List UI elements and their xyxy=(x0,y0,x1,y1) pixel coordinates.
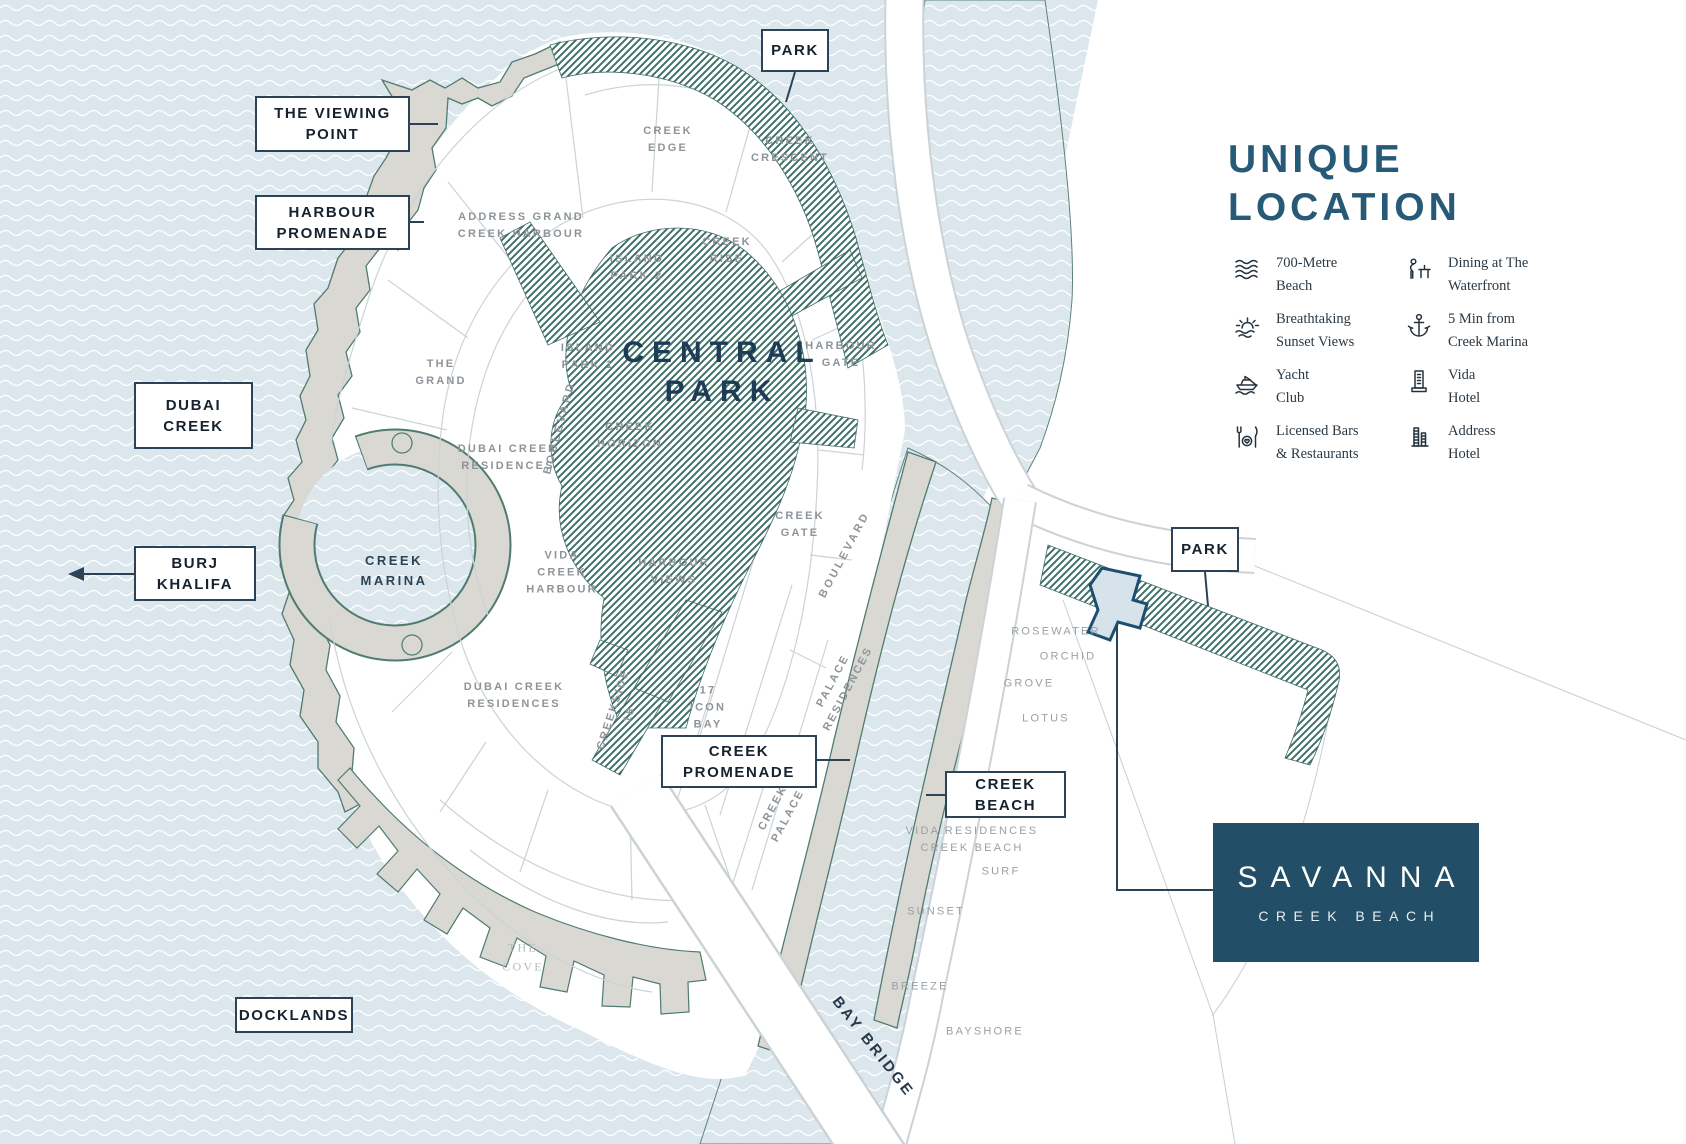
feature-beach: 700-Metre Beach xyxy=(1232,252,1402,298)
feature-label: Breathtaking Sunset Views xyxy=(1276,308,1354,354)
feature-label: 5 Min from Creek Marina xyxy=(1448,308,1528,354)
address-hotel-icon xyxy=(1404,422,1434,452)
feature-label: Vida Hotel xyxy=(1448,364,1480,410)
savanna-name: SAVANNA xyxy=(1225,861,1468,895)
feature-sunset-views: Breathtaking Sunset Views xyxy=(1232,308,1402,354)
dining-icon xyxy=(1404,254,1434,284)
savanna-subtitle: CREEK BEACH xyxy=(1251,908,1441,924)
area-grove: GROVE xyxy=(1004,675,1055,692)
feature-label: Licensed Bars & Restaurants xyxy=(1276,420,1359,466)
page-title: UNIQUE LOCATION xyxy=(1228,136,1461,232)
callout-park-top: PARK xyxy=(761,29,829,72)
area-creek-marina: CREEK MARINA xyxy=(361,551,428,591)
area-17-icon-bay: 17 ICON BAY xyxy=(690,682,726,733)
yacht-icon xyxy=(1232,366,1262,396)
feature-vida-hotel: Vida Hotel xyxy=(1404,364,1574,410)
area-harbour-gate: HARBOUR GATE xyxy=(805,338,877,372)
area-the-cove: THE COVE xyxy=(502,938,543,975)
callout-park-right: PARK xyxy=(1171,527,1239,572)
marina-knob-south xyxy=(402,635,422,655)
bars-icon xyxy=(1232,422,1262,452)
area-creek-crescent: CREEK CRESCENT xyxy=(751,133,829,167)
area-harbour-views: HARBOUR VIEWS xyxy=(638,555,710,589)
area-creek-horizon: CREEK HORIZON xyxy=(597,419,663,453)
callout-harbour-promenade: HARBOUR PROMENADE xyxy=(255,195,410,250)
area-breeze: BREEZE xyxy=(891,978,948,995)
area-bayshore: BAYSHORE xyxy=(946,1023,1024,1040)
waves-icon xyxy=(1232,254,1262,284)
area-island-park-1: ISLAND PARK 1 xyxy=(561,340,615,374)
area-central-park: CENTRAL PARK xyxy=(622,333,821,411)
area-surf: SURF xyxy=(982,863,1021,880)
area-island-park-2: ISLAND PARK 2 xyxy=(610,251,664,285)
feature-label: Dining at The Waterfront xyxy=(1448,252,1528,298)
callout-viewing-point: THE VIEWING POINT xyxy=(255,96,410,152)
area-address-grand: ADDRESS GRAND CREEK HARBOUR xyxy=(458,209,584,243)
sunset-icon xyxy=(1232,310,1262,340)
area-rosewater: ROSEWATER xyxy=(1011,623,1100,640)
area-sunset: SUNSET xyxy=(907,903,965,920)
area-vida-residences-creek-beach: VIDA RESIDENCES CREEK BEACH xyxy=(906,823,1039,857)
area-lotus: LOTUS xyxy=(1022,710,1070,727)
area-creek-gate: CREEK GATE xyxy=(775,508,825,542)
feature-label: Yacht Club xyxy=(1276,364,1309,410)
feature-address-hotel: Address Hotel xyxy=(1404,420,1574,466)
vida-hotel-icon xyxy=(1404,366,1434,396)
location-map-page: CENTRAL PARK CREEK EDGE CREEK CRESCENT C… xyxy=(0,0,1686,1144)
savanna-brand-plate: SAVANNA CREEK BEACH xyxy=(1213,823,1479,962)
callout-burj-khalifa: BURJ KHALIFA xyxy=(134,546,256,601)
callout-dubai-creek: DUBAI CREEK xyxy=(134,382,253,449)
feature-waterfront-dining: Dining at The Waterfront xyxy=(1404,252,1574,298)
marina-knob-north xyxy=(392,433,412,453)
feature-licensed-bars: Licensed Bars & Restaurants xyxy=(1232,420,1402,466)
area-creek-edge: CREEK EDGE xyxy=(643,123,693,157)
feature-creek-marina-5min: 5 Min from Creek Marina xyxy=(1404,308,1574,354)
area-orchid: ORCHID xyxy=(1040,648,1097,665)
feature-label: Address Hotel xyxy=(1448,420,1496,466)
area-dubai-creek-residences-lower: DUBAI CREEK RESIDENCES xyxy=(464,679,565,713)
anchor-icon xyxy=(1404,310,1434,340)
area-vida-creek-harbour: VIDA CREEK HARBOUR xyxy=(526,547,598,598)
callout-docklands: DOCKLANDS xyxy=(235,997,353,1033)
feature-yacht-club: Yacht Club xyxy=(1232,364,1402,410)
area-the-grand: THE GRAND xyxy=(415,356,466,390)
area-creek-rise: CREEK RISE xyxy=(702,234,752,268)
feature-label: 700-Metre Beach xyxy=(1276,252,1337,298)
callout-creek-promenade: CREEK PROMENADE xyxy=(661,735,817,788)
callout-creek-beach: CREEK BEACH xyxy=(945,771,1066,818)
